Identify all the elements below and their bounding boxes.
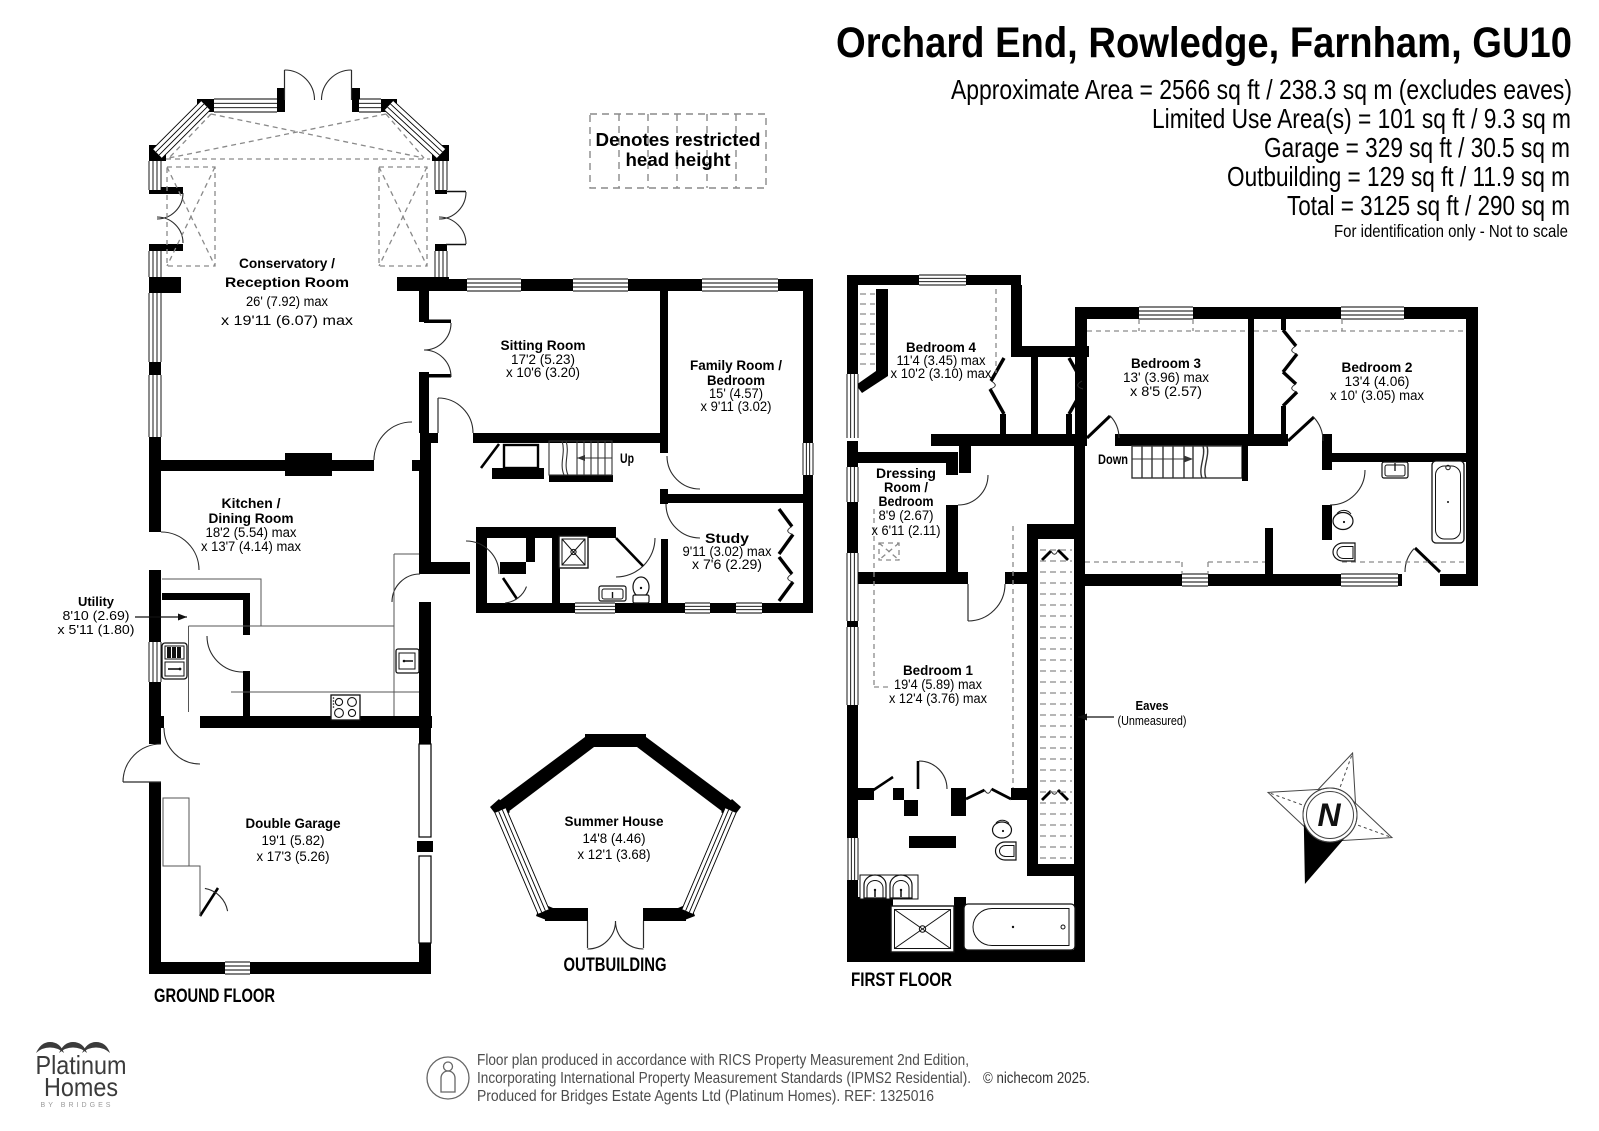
svg-text:Garage = 329 sq ft / 30.5 sq m: Garage = 329 sq ft / 30.5 sq m bbox=[1264, 132, 1570, 163]
svg-text:x 17'3 (5.26): x 17'3 (5.26) bbox=[257, 849, 330, 865]
svg-text:(Unmeasured): (Unmeasured) bbox=[1118, 713, 1187, 728]
svg-text:8'9 (2.67): 8'9 (2.67) bbox=[879, 508, 934, 524]
svg-text:Conservatory /: Conservatory / bbox=[239, 256, 335, 272]
svg-text:OUTBUILDING: OUTBUILDING bbox=[564, 954, 667, 976]
svg-text:For identification only - Not: For identification only - Not to scale bbox=[1334, 221, 1568, 241]
svg-text:x 8'5 (2.57): x 8'5 (2.57) bbox=[1130, 384, 1202, 400]
svg-text:© nichecom 2025.: © nichecom 2025. bbox=[983, 1070, 1090, 1087]
svg-text:Homes: Homes bbox=[44, 1072, 118, 1102]
svg-text:Orchard End, Rowledge, Farnham: Orchard End, Rowledge, Farnham, GU10 bbox=[836, 19, 1572, 67]
svg-text:FIRST FLOOR: FIRST FLOOR bbox=[851, 969, 952, 991]
svg-text:Kitchen /: Kitchen / bbox=[222, 496, 281, 512]
svg-text:14'8 (4.46): 14'8 (4.46) bbox=[583, 831, 646, 847]
svg-text:Approximate Area = 2566 sq ft: Approximate Area = 2566 sq ft / 238.3 sq… bbox=[951, 74, 1572, 105]
svg-text:8'10 (2.69): 8'10 (2.69) bbox=[63, 608, 130, 623]
svg-text:x 19'11 (6.07) max: x 19'11 (6.07) max bbox=[221, 313, 353, 329]
svg-text:GROUND FLOOR: GROUND FLOOR bbox=[154, 985, 275, 1007]
svg-text:N: N bbox=[1317, 797, 1341, 833]
svg-text:BY BRIDGES: BY BRIDGES bbox=[41, 1100, 114, 1109]
svg-text:Floor plan produced in accorda: Floor plan produced in accordance with R… bbox=[477, 1052, 969, 1069]
svg-text:Eaves: Eaves bbox=[1136, 698, 1169, 713]
svg-text:x 6'11 (2.11): x 6'11 (2.11) bbox=[872, 523, 941, 539]
svg-text:Utility: Utility bbox=[78, 594, 115, 609]
svg-text:19'1 (5.82): 19'1 (5.82) bbox=[262, 833, 325, 849]
svg-text:x 7'6 (2.29): x 7'6 (2.29) bbox=[692, 557, 762, 573]
svg-text:Up: Up bbox=[620, 451, 634, 466]
svg-text:Outbuilding = 129 sq ft / 11.9: Outbuilding = 129 sq ft / 11.9 sq m bbox=[1227, 161, 1570, 192]
svg-text:x 10'2 (3.10) max: x 10'2 (3.10) max bbox=[891, 366, 992, 382]
svg-text:Family Room /: Family Room / bbox=[690, 358, 782, 374]
svg-text:x 13'7 (4.14) max: x 13'7 (4.14) max bbox=[201, 539, 301, 555]
svg-text:x 5'11 (1.80): x 5'11 (1.80) bbox=[58, 622, 135, 637]
svg-text:Summer House: Summer House bbox=[565, 814, 664, 830]
svg-text:Denotes restricted: Denotes restricted bbox=[596, 130, 761, 150]
svg-text:x 12'1 (3.68): x 12'1 (3.68) bbox=[578, 847, 651, 863]
svg-text:26' (7.92) max: 26' (7.92) max bbox=[246, 294, 328, 310]
svg-text:Produced for Bridges Estate Ag: Produced for Bridges Estate Agents Ltd (… bbox=[477, 1088, 934, 1105]
svg-text:x 10'6 (3.20): x 10'6 (3.20) bbox=[506, 365, 580, 381]
svg-text:head height: head height bbox=[626, 150, 731, 170]
svg-text:x 10' (3.05) max: x 10' (3.05) max bbox=[1330, 388, 1424, 404]
svg-text:Incorporating International Pr: Incorporating International Property Mea… bbox=[477, 1070, 971, 1087]
svg-text:Total = 3125 sq ft / 290 sq m: Total = 3125 sq ft / 290 sq m bbox=[1287, 190, 1570, 221]
svg-text:Down: Down bbox=[1098, 452, 1128, 467]
svg-text:Double Garage: Double Garage bbox=[246, 816, 341, 832]
svg-text:Reception Room: Reception Room bbox=[225, 275, 349, 291]
svg-text:Limited Use Area(s) = 101 sq f: Limited Use Area(s) = 101 sq ft / 9.3 sq… bbox=[1152, 103, 1571, 134]
svg-text:x 12'4 (3.76) max: x 12'4 (3.76) max bbox=[889, 691, 987, 707]
svg-text:x 9'11 (3.02): x 9'11 (3.02) bbox=[701, 399, 772, 415]
